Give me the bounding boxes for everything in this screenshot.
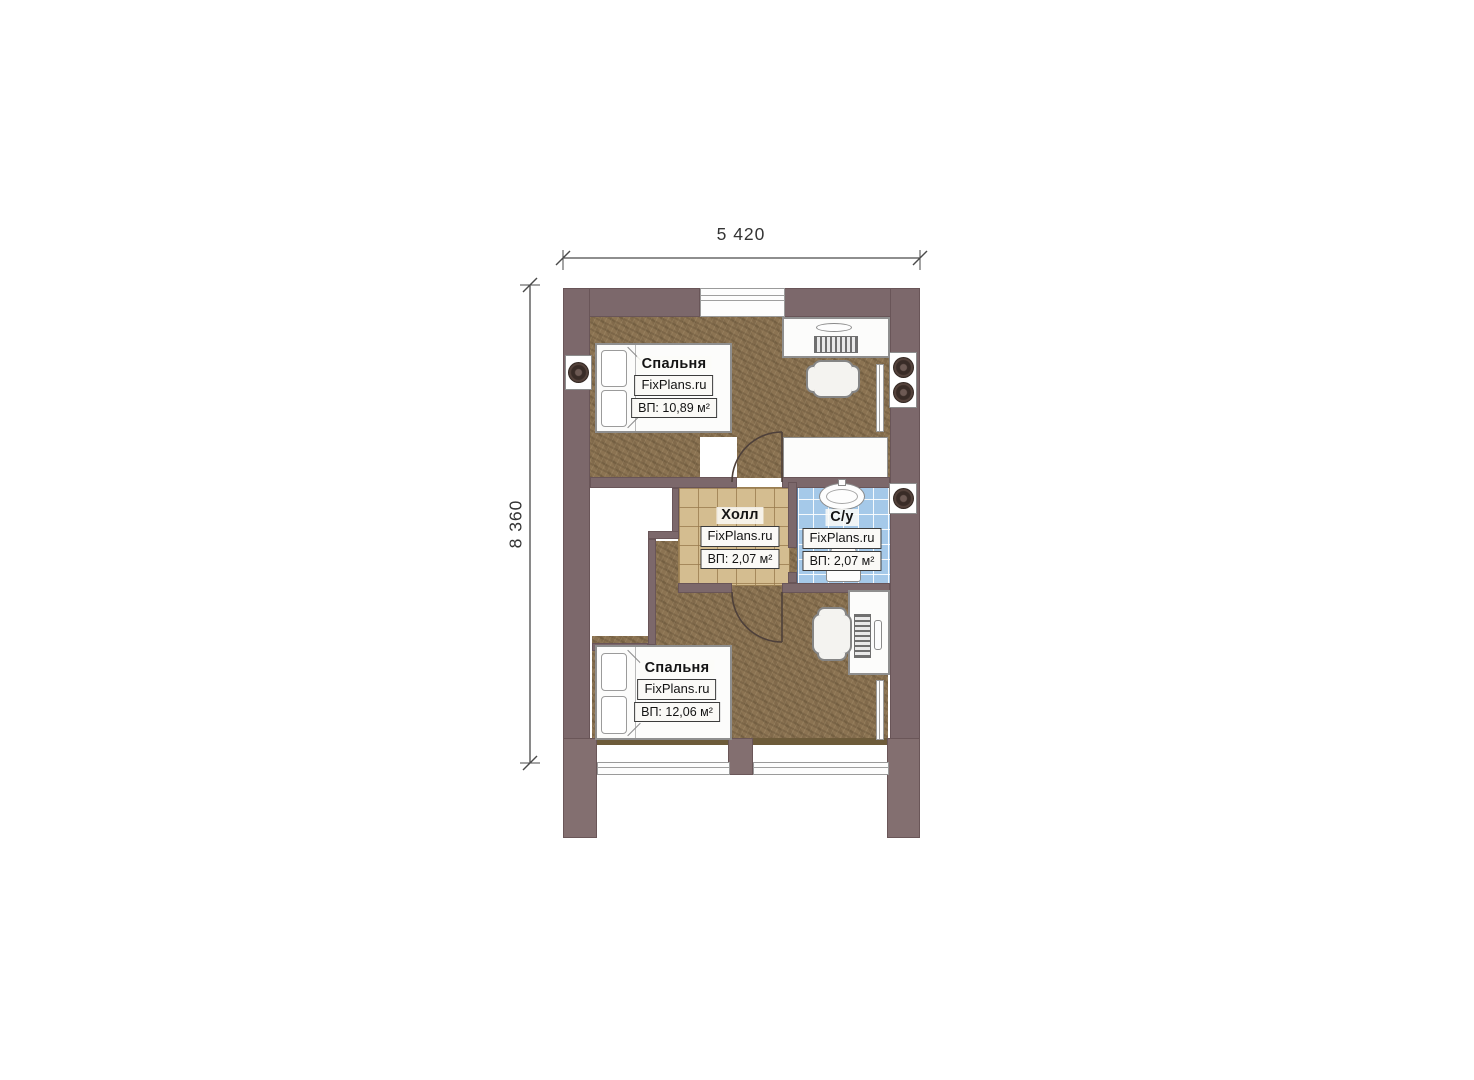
mouse-pad-icon (874, 620, 882, 650)
keyboard-icon (854, 614, 871, 658)
room-name: Холл (716, 507, 764, 524)
dimension-height-label: 8 360 (506, 500, 527, 549)
wardrobe-icon (783, 437, 888, 478)
room-label-bathroom: С/у FixPlans.ru ВП: 2,07 м² (802, 509, 881, 571)
window-pane (879, 365, 880, 431)
desk-icon (782, 317, 890, 358)
room-label-bedroom-bottom: Спальня FixPlans.ru ВП: 12,06 м² (634, 660, 720, 722)
pillow-icon (601, 653, 627, 691)
dimension-width-label: 5 420 (717, 224, 766, 245)
window-pane (701, 300, 784, 301)
faucet-icon (838, 479, 846, 486)
bottom-wall-center-pier (728, 738, 753, 775)
vent-box-left (565, 355, 592, 390)
room-area-badge: ВП: 10,89 м² (631, 398, 717, 418)
room-brand-badge: FixPlans.ru (802, 528, 881, 549)
room-area-badge: ВП: 2,07 м² (701, 549, 780, 569)
stair-void-upper (592, 488, 674, 534)
window-top-icon (700, 288, 785, 317)
sink-icon (819, 483, 865, 510)
porch-column-right (887, 738, 920, 838)
vent-box-right-double (889, 352, 917, 408)
office-chair-icon (812, 613, 852, 655)
room-name: Спальня (640, 660, 715, 677)
desk-icon (848, 590, 890, 675)
room-label-bedroom-top: Спальня FixPlans.ru ВП: 10,89 м² (631, 356, 717, 418)
room-brand-badge: FixPlans.ru (634, 375, 713, 396)
iwall-hall-bath-upper (788, 482, 797, 548)
room-name: С/у (825, 509, 858, 526)
vent-icon (893, 357, 914, 378)
room-area-badge: ВП: 12,06 м² (634, 702, 720, 722)
door-niche (700, 437, 737, 478)
printer-icon (814, 336, 858, 353)
room-name: Спальня (637, 356, 712, 373)
room-area-badge: ВП: 2,07 м² (803, 551, 882, 571)
stair-void-lower (592, 534, 648, 636)
pillow-icon (601, 350, 627, 387)
window-bottom-left-icon (597, 762, 730, 775)
porch-column-left (563, 738, 597, 838)
iwall-hall-bath-lower (788, 572, 797, 583)
iwall-void-step (648, 531, 679, 539)
window-pane (598, 767, 729, 768)
dim-tick (913, 251, 927, 265)
printer-tray-icon (816, 323, 852, 332)
window-pane (754, 767, 888, 768)
floor-plan-canvas: 5 420 8 360 Спальня FixPlans.ru ВП: 10,8… (0, 0, 1474, 1080)
vent-icon (893, 488, 914, 509)
office-chair-icon (812, 360, 854, 398)
room-label-hall: Холл FixPlans.ru ВП: 2,07 м² (700, 507, 779, 569)
blanket-fold (627, 723, 640, 736)
window-right-bottom-icon (876, 680, 884, 740)
vent-icon (568, 362, 589, 383)
dim-tick (523, 756, 537, 770)
vent-box-bathroom (889, 483, 917, 514)
iwall-bedroomtop-left (590, 477, 737, 488)
pillow-icon (601, 390, 627, 427)
window-pane (879, 681, 880, 739)
window-pane (701, 295, 784, 296)
dim-tick (556, 251, 570, 265)
iwall-hall-bottom-left (678, 583, 732, 593)
vent-icon (893, 382, 914, 403)
room-brand-badge: FixPlans.ru (700, 526, 779, 547)
pillow-icon (601, 696, 627, 734)
room-brand-badge: FixPlans.ru (637, 679, 716, 700)
dim-tick (523, 278, 537, 292)
iwall-void-right-lower (648, 539, 656, 645)
window-bottom-right-icon (753, 762, 889, 775)
window-right-top-icon (876, 364, 884, 432)
